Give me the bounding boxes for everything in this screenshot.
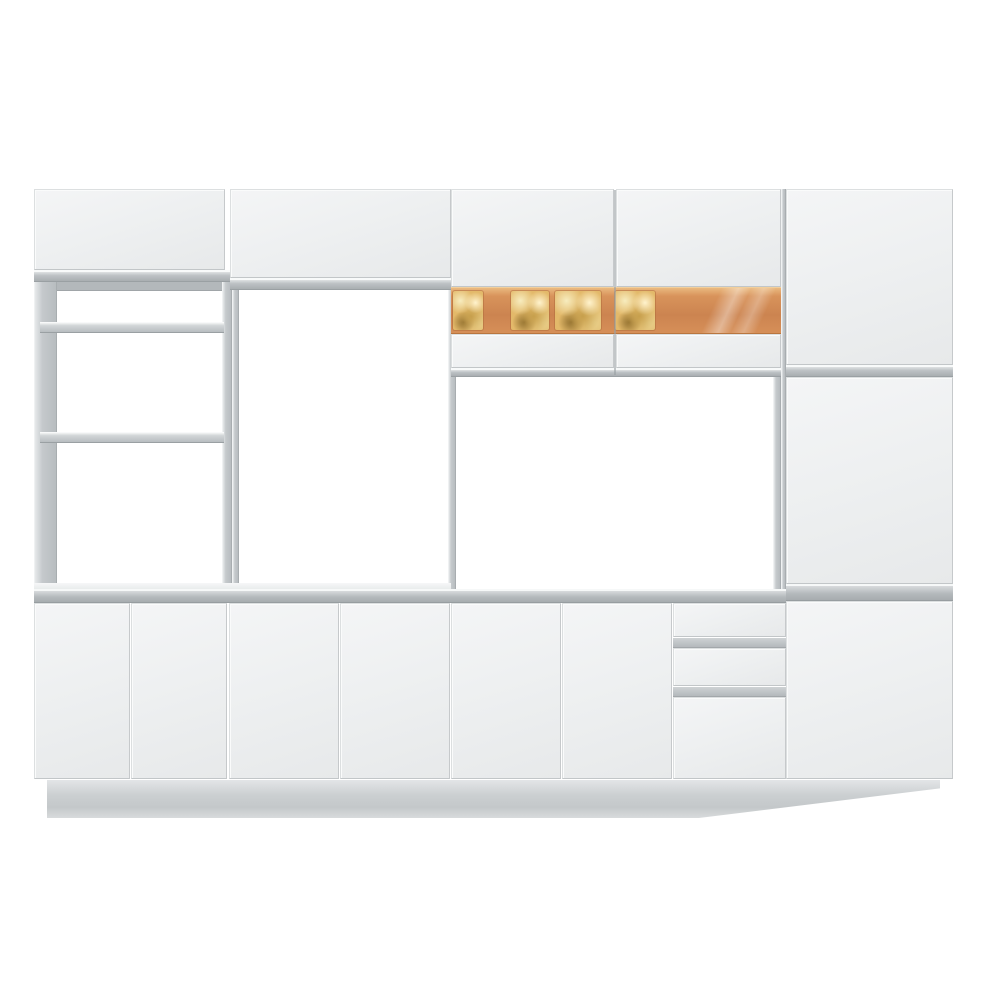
drawer-groove-1 bbox=[673, 637, 786, 648]
wall-cabinet-right-door-upper bbox=[616, 189, 781, 287]
drawer-front-middle bbox=[673, 648, 786, 686]
base-door-1 bbox=[34, 603, 130, 779]
glass-pane-2 bbox=[511, 291, 549, 330]
base-door-6 bbox=[562, 603, 672, 779]
glass-pane-3 bbox=[555, 291, 601, 330]
wall-cabinet-left-door-upper bbox=[451, 189, 614, 287]
base-door-5 bbox=[451, 603, 561, 779]
work-area-side-panel bbox=[773, 377, 781, 589]
tower-top-door bbox=[230, 189, 451, 278]
wall-cabinet-bottom-band bbox=[451, 368, 781, 377]
base-door-2 bbox=[131, 603, 227, 779]
countertop bbox=[34, 589, 786, 603]
tall-cabinet-door-top bbox=[786, 189, 953, 365]
glass-reflection-streak bbox=[690, 288, 775, 333]
left-unit-shelf-upper bbox=[40, 322, 224, 333]
glass-pane-4 bbox=[615, 291, 655, 330]
left-unit-top-door bbox=[34, 189, 225, 270]
base-door-3 bbox=[229, 603, 339, 779]
tall-cabinet-door-middle bbox=[786, 377, 953, 584]
glass-pane-1 bbox=[453, 291, 483, 330]
base-door-4 bbox=[340, 603, 450, 779]
drawer-base-door bbox=[673, 697, 786, 779]
tall-cabinet-divider-lower bbox=[786, 584, 953, 601]
tall-cabinet-door-bottom bbox=[786, 601, 953, 779]
drawer-groove-2 bbox=[673, 686, 786, 697]
drawer-front-top bbox=[673, 603, 786, 637]
left-unit-frame-bar bbox=[38, 282, 228, 291]
left-unit-top-edge-band bbox=[34, 270, 232, 282]
tower-left-stile bbox=[232, 290, 239, 589]
tall-cabinet-divider-upper bbox=[786, 365, 953, 377]
tower-top-edge-band bbox=[230, 278, 451, 290]
left-unit-shelf-lower bbox=[40, 432, 224, 443]
wall-cabinet-left-door-lower bbox=[451, 334, 614, 368]
wall-cabinet-door-divider bbox=[614, 190, 616, 375]
kitchen-cabinet-set-photo bbox=[0, 0, 1000, 1000]
plinth bbox=[47, 780, 940, 818]
wall-cabinet-right-door-lower bbox=[616, 334, 781, 368]
